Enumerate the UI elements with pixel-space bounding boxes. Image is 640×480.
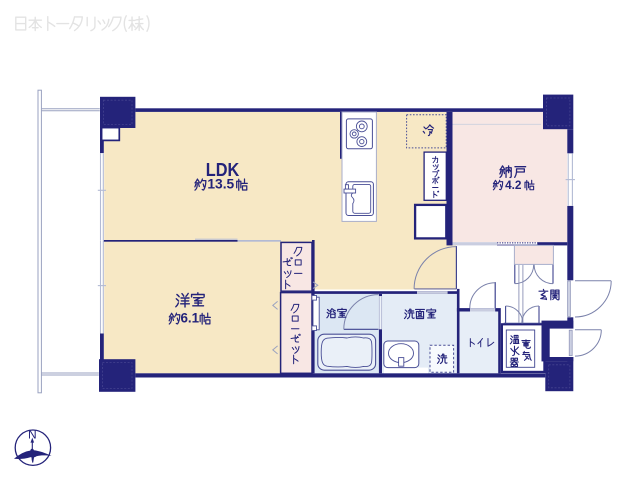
svg-text:13.5: 13.5 (207, 177, 234, 192)
svg-text:6.1: 6.1 (180, 310, 199, 325)
svg-text:4.2: 4.2 (505, 178, 522, 192)
